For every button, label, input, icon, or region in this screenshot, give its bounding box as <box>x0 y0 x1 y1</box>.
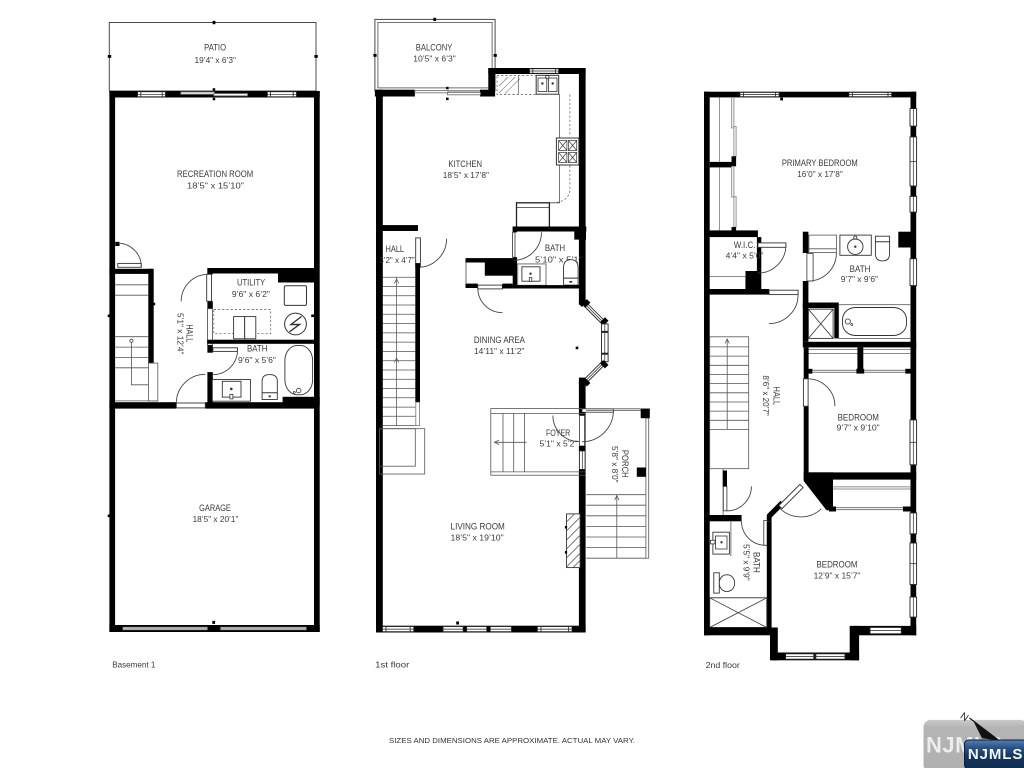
svg-text:HALL: HALL <box>386 244 405 254</box>
svg-text:NJMLS: NJMLS <box>968 746 1023 763</box>
svg-text:5’1" x 12’4": 5’1" x 12’4" <box>175 313 185 355</box>
svg-text:UTILITY: UTILITY <box>237 278 265 288</box>
svg-text:BATH: BATH <box>850 264 871 274</box>
svg-text:PRIMARY BEDROOM: PRIMARY BEDROOM <box>782 158 858 168</box>
svg-text:12’9" x 15’7": 12’9" x 15’7" <box>814 570 861 580</box>
svg-text:BATH: BATH <box>545 243 565 253</box>
svg-text:FOYER: FOYER <box>546 428 570 438</box>
svg-text:KITCHEN: KITCHEN <box>448 159 482 169</box>
svg-text:18’5" x 19’10": 18’5" x 19’10" <box>451 532 504 542</box>
svg-text:5’1" x 5’2": 5’1" x 5’2" <box>540 438 578 448</box>
svg-text:10’5" x 6’3": 10’5" x 6’3" <box>413 54 456 64</box>
svg-text:BALCONY: BALCONY <box>416 42 453 52</box>
svg-text:W.I.C.: W.I.C. <box>734 240 756 250</box>
svg-text:3’2" x 4’7": 3’2" x 4’7" <box>379 255 415 265</box>
svg-text:18’5" x 17’8": 18’5" x 17’8" <box>443 170 489 180</box>
svg-text:HALL: HALL <box>771 387 781 406</box>
svg-text:PORCH: PORCH <box>620 450 630 478</box>
svg-text:BEDROOM: BEDROOM <box>838 412 879 422</box>
svg-text:BATH: BATH <box>752 552 762 573</box>
svg-text:9’6" x 5’6": 9’6" x 5’6" <box>238 355 276 365</box>
svg-text:19’4" x 6’3": 19’4" x 6’3" <box>195 55 236 65</box>
svg-text:8’6" x 20’7": 8’6" x 20’7" <box>761 375 771 415</box>
svg-text:9’6" x 6’2": 9’6" x 6’2" <box>232 289 270 299</box>
svg-text:Basement 1: Basement 1 <box>112 660 155 670</box>
svg-text:1st floor: 1st floor <box>375 660 409 670</box>
svg-text:BEDROOM: BEDROOM <box>817 560 858 570</box>
svg-text:BATH: BATH <box>247 344 268 354</box>
svg-text:14’11" x 11’2": 14’11" x 11’2" <box>474 346 525 356</box>
svg-text:2nd floor: 2nd floor <box>706 660 740 670</box>
svg-text:5’8" x 8’0": 5’8" x 8’0" <box>610 446 620 483</box>
svg-text:4’4" x 5’0": 4’4" x 5’0" <box>726 250 764 260</box>
svg-text:5’5" x 9’9": 5’5" x 9’9" <box>742 544 752 581</box>
svg-text:DINING AREA: DINING AREA <box>474 335 525 345</box>
svg-text:18’5" x 15’10": 18’5" x 15’10" <box>187 181 244 191</box>
svg-text:9’7" x 9’6": 9’7" x 9’6" <box>841 274 878 284</box>
svg-text:PATIO: PATIO <box>204 43 226 53</box>
svg-text:RECREATION ROOM: RECREATION ROOM <box>177 169 253 179</box>
svg-text:9’7" x 9’10": 9’7" x 9’10" <box>837 422 880 432</box>
svg-text:LIVING ROOM: LIVING ROOM <box>451 521 505 531</box>
svg-text:18’5" x 20’1": 18’5" x 20’1" <box>193 514 239 524</box>
svg-text:SIZES AND DIMENSIONS ARE APPRO: SIZES AND DIMENSIONS ARE APPROXIMATE. AC… <box>389 736 635 745</box>
svg-text:16’0" x 17’8": 16’0" x 17’8" <box>797 169 843 179</box>
svg-text:GARAGE: GARAGE <box>199 503 231 513</box>
